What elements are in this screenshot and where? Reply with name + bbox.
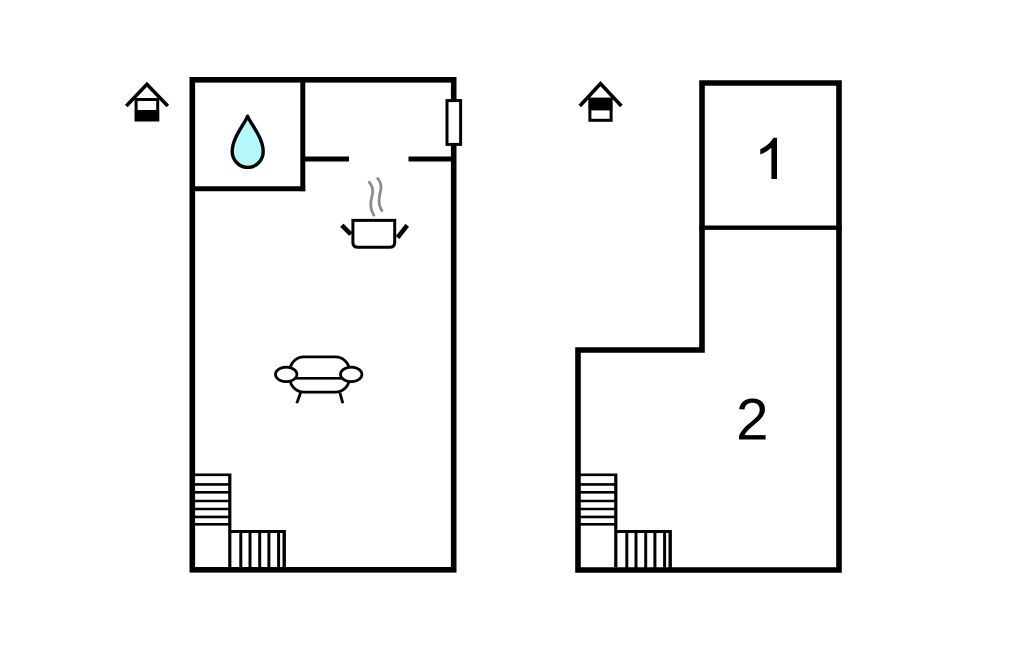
svg-text:2: 2 bbox=[736, 388, 769, 453]
